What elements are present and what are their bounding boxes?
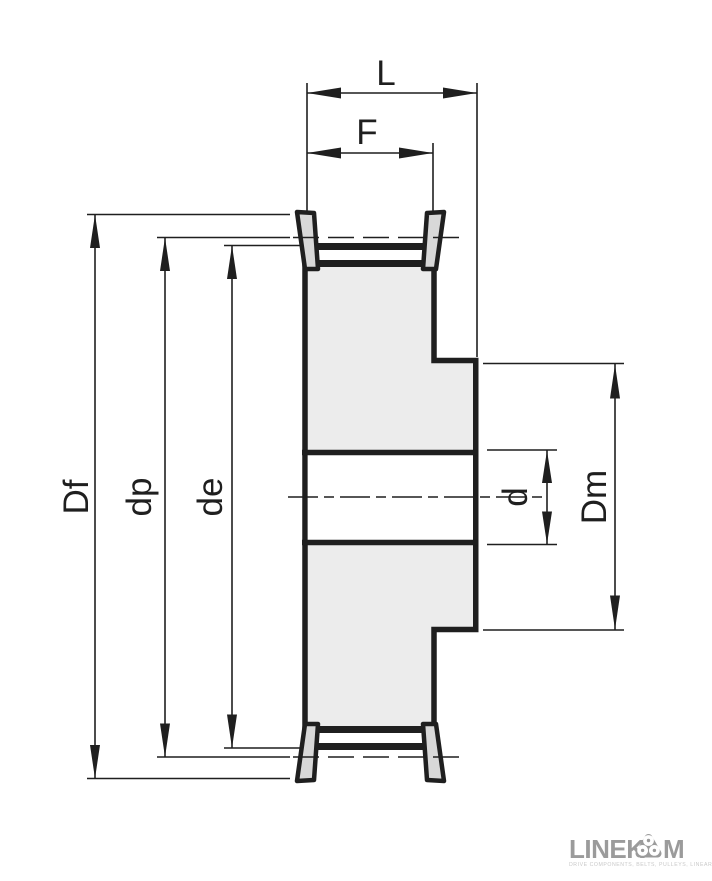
flange-bottom-right [423, 724, 444, 781]
arrow-d-down [542, 512, 552, 545]
arrow-Df-up [90, 215, 100, 249]
logo: LINEK M DRIVE COMPONENTS, BELTS, PULLEYS… [569, 834, 712, 868]
dim-label-Df: Df [57, 479, 96, 514]
pulley-cross-section-drawing: L F Df dp de d Dm LINEK M DRIVE COMPONEN… [0, 0, 712, 881]
flange-top-left [297, 212, 318, 269]
arrow-Df-down [90, 745, 100, 779]
arrow-dp-down [160, 724, 170, 758]
dim-label-Dm: Dm [575, 470, 614, 524]
arrow-Dm-up [610, 365, 620, 399]
arrow-Dm-down [610, 596, 620, 630]
flange-bottom-left [297, 724, 318, 781]
logo-text-right: M [663, 834, 684, 864]
arrow-F-left [307, 148, 341, 159]
arrow-d-up [542, 451, 552, 484]
arrow-L-right [443, 88, 477, 99]
dim-label-dp: dp [120, 478, 159, 517]
logo-tagline: DRIVE COMPONENTS, BELTS, PULLEYS, LINEAR… [569, 862, 712, 868]
drawing-page: L F Df dp de d Dm LINEK M DRIVE COMPONEN… [0, 0, 712, 881]
flange-top-right [423, 212, 444, 269]
logo-text-left: LINEK [569, 834, 645, 864]
arrow-L-left [307, 88, 341, 99]
dim-label-L: L [376, 54, 395, 93]
dim-label-d: d [496, 487, 535, 506]
dim-label-F: F [356, 113, 377, 152]
arrow-de-down [227, 715, 237, 749]
dim-label-de: de [191, 478, 230, 517]
arrow-dp-up [160, 238, 170, 272]
arrow-de-up [227, 246, 237, 280]
arrow-F-right [399, 148, 433, 159]
